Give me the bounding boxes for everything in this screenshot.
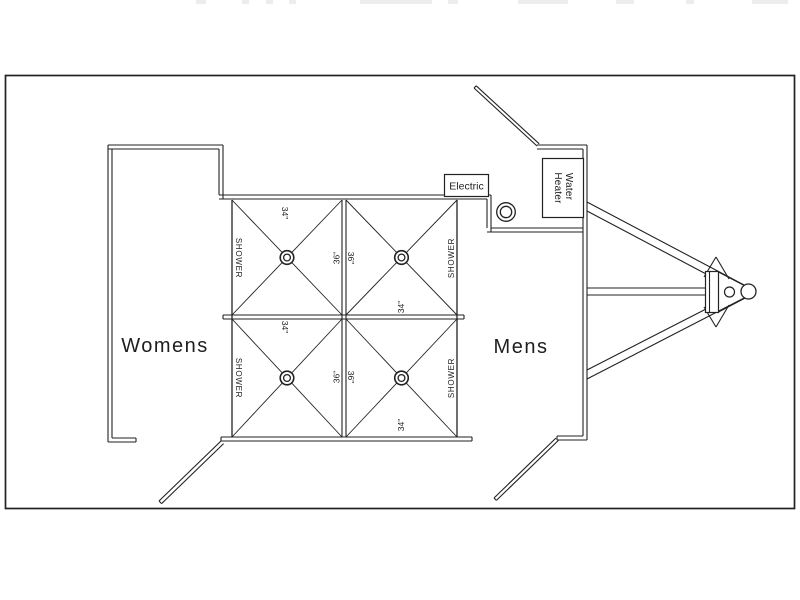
top-edge-artifacts — [196, 0, 788, 4]
mens-bottom-door-leaf — [494, 438, 558, 500]
dim-34-bottom-right: 34" — [396, 419, 406, 431]
electric-panel: Electric — [445, 175, 489, 197]
shower-label-top-left: SHOWER — [234, 238, 243, 278]
floor-plan-drawing: Electric Water Heater Womens Mens SHOWER… — [0, 0, 800, 600]
shower-label-top-right: SHOWER — [447, 238, 456, 278]
water-heater-label-line2: Heater — [552, 172, 563, 204]
dim-34-bottom-left: 34" — [280, 321, 290, 333]
dim-36-bottom-left: 36" — [332, 371, 342, 383]
dim-34-top-left: 34" — [280, 207, 290, 219]
mens-top-door-leaf — [474, 86, 539, 146]
utility-pipe-icon — [497, 203, 516, 222]
hitch-coupler-icon — [741, 284, 756, 299]
drain-icon — [395, 371, 409, 385]
floor-plan-svg: Electric Water Heater Womens Mens SHOWER… — [0, 0, 800, 600]
electric-label: Electric — [449, 181, 483, 193]
womens-door-leaf — [159, 441, 224, 504]
dim-36-top-right: 36" — [346, 252, 356, 264]
drain-icon — [280, 371, 294, 385]
womens-room-label: Womens — [121, 335, 209, 357]
dim-36-top-left: 36" — [332, 252, 342, 264]
mens-room-label: Mens — [494, 336, 549, 358]
hitch-pin-icon — [725, 287, 735, 297]
svg-text:Water Heater: Water Heater — [552, 172, 574, 204]
shower-label-bottom-right: SHOWER — [447, 358, 456, 398]
trailer-hitch — [587, 202, 756, 379]
dim-34-top-right: 34" — [396, 301, 406, 313]
drain-icon — [395, 251, 409, 265]
water-heater-label-line1: Water — [563, 173, 574, 201]
dim-36-bottom-right: 36" — [346, 371, 356, 383]
water-heater: Water Heater — [543, 159, 584, 218]
drain-icon — [280, 251, 294, 265]
drawing-border — [6, 76, 795, 509]
shower-label-bottom-left: SHOWER — [234, 358, 243, 398]
trailer-walls — [108, 145, 587, 442]
